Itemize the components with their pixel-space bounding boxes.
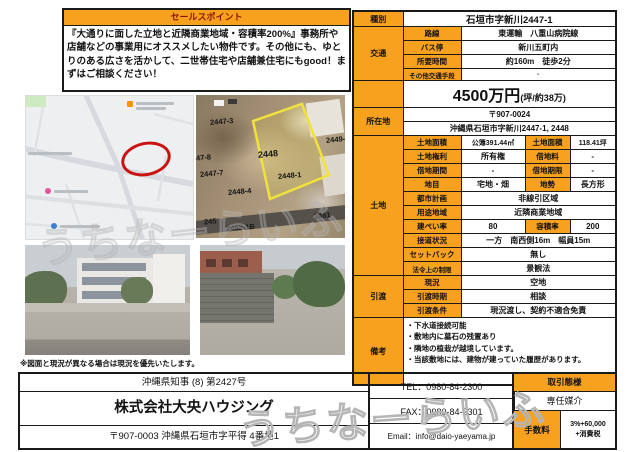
bus-stop-value: 新川五町内 (461, 41, 616, 55)
floor-ratio-label: 容積率 (525, 220, 570, 234)
road-access-label: 接道状況 (403, 234, 461, 248)
access-label: 交通 (353, 27, 403, 81)
deal-type-label: 取引態様 (514, 374, 615, 392)
map-marker-orange-label (136, 102, 174, 105)
lease-term-value: - (570, 164, 616, 178)
city-planning-value: 非線引区域 (461, 192, 616, 206)
note-line: ・隣地の植栽が越境しています。 (407, 343, 613, 354)
address: 沖縄県石垣市字新川2447-1, 2448 (403, 122, 616, 136)
handover-terms-value: 現況渡し、契約不適合免責 (461, 304, 616, 318)
company-address: 〒907-0003 沖縄県石垣市字平得 4番地1 (20, 426, 368, 448)
price-label-cell (353, 81, 403, 108)
disclaimer-note: ※図面と現況が異なる場合は現況を優先いたします。 (20, 358, 199, 369)
route-value: 東運輸 八重山病院線 (461, 27, 616, 41)
handover-label: 引渡 (353, 276, 403, 318)
price-per-tsubo: (坪/約38万) (520, 93, 566, 103)
fee-value: 3%+60,000 +消費税 (561, 411, 615, 448)
aerial-parcel-photo: 2447-3 47-8 2447-7 2448 2448-1 2448-4 24… (196, 95, 345, 238)
postal-code: 〒907-0024 (403, 108, 616, 122)
price-value: 4500万円 (453, 88, 521, 105)
map-marker-orange-label2 (136, 107, 166, 110)
time-value: 約160m 徒歩2分 (461, 55, 616, 69)
other-access-value: - (461, 69, 616, 81)
property-photo-lot (200, 245, 345, 355)
road-access-value: 一方 南西側16m 幅員15m (461, 234, 616, 248)
property-photo-street (25, 245, 190, 355)
photo-window-row (82, 263, 146, 271)
parcel-number: 2451 (314, 210, 331, 220)
sales-points-text: 『大通りに面した立地と近隣商業地域・容積率200%』事務所や店舗などの事業用にオ… (64, 26, 349, 83)
land-area-tsubo-value: 118.41坪 (570, 136, 616, 150)
email-address: Email：info@daio-yaeyama.jp (370, 424, 513, 448)
map-marker-orange-icon (127, 101, 133, 107)
other-access-label: その他交通手段 (403, 69, 461, 81)
sales-points-section: セールスポイント 『大通りに面した立地と近隣商業地域・容積率200%』事務所や店… (62, 8, 351, 92)
land-area-value: 公簿391.44㎡ (461, 136, 525, 150)
handover-time-value: 相談 (461, 290, 616, 304)
note-line: ・下水道接続可能 (407, 320, 613, 331)
photo-wall (25, 303, 190, 312)
topography-value: 長方形 (570, 178, 616, 192)
handover-time-label: 引渡時期 (403, 290, 461, 304)
setback-value: 無し (461, 248, 616, 262)
note-line: ・当該敷地には、建物が建っていた履歴があります。 (407, 354, 613, 365)
parcel-number: 2448 (258, 148, 279, 160)
zoning-label: 用途地域 (403, 206, 461, 220)
city-planning-label: 都市計画 (403, 192, 461, 206)
company-name: 株式会社大央ハウジング (20, 392, 368, 426)
lease-period-value: - (461, 164, 525, 178)
location-label: 所在地 (353, 108, 403, 136)
sales-points-header: セールスポイント (64, 10, 349, 26)
deal-type-value: 専任媒介 (514, 392, 615, 411)
current-state-value: 空地 (461, 276, 616, 290)
fax-number: FAX：0980-84-2301 (370, 399, 513, 424)
parcel-number: 245 (204, 216, 217, 226)
property-spec-table: 種別 石垣市字新川2447-1 交通 路線 東運輸 八重山病院線 バス停 新川五… (352, 10, 617, 386)
setback-label: セットバック (403, 248, 461, 262)
fee-line: +消費税 (575, 430, 600, 439)
lease-fee-value: - (570, 150, 616, 164)
land-area-label: 土地面積 (403, 136, 461, 150)
land-label: 土地 (353, 136, 403, 276)
land-category-value: 宅地・畑 (461, 178, 525, 192)
photo-window (238, 259, 248, 267)
zoning-value: 近隣商業地域 (461, 206, 616, 220)
photo-window (222, 259, 232, 267)
photo-tree (293, 261, 345, 307)
type-label: 種別 (353, 11, 403, 27)
photo-block-wall (200, 273, 274, 323)
license-number: 沖縄県知事 (8) 第2427号 (20, 374, 368, 392)
photo-window (206, 259, 216, 267)
land-category-label: 地目 (403, 178, 461, 192)
land-area-tsubo-label: 土地面積 (525, 136, 570, 150)
map-text-label (28, 152, 72, 155)
map-marker-blue-icon (51, 223, 57, 229)
route-label: 路線 (403, 27, 461, 41)
photo-building (153, 254, 185, 306)
topography-label: 地勢 (525, 178, 570, 192)
location-map (25, 95, 194, 240)
floor-ratio-value: 200 (570, 220, 616, 234)
map-roads (26, 96, 193, 239)
legal-restriction-label: 法令上の制限 (403, 262, 461, 276)
parcel-number: 2449- (326, 134, 345, 145)
map-marker-pink-icon (45, 188, 51, 194)
price-cell: 4500万円(坪/約38万) (403, 81, 616, 108)
land-rights-value: 所有権 (461, 150, 525, 164)
property-flyer-page: セールスポイント 『大通りに面した立地と近隣商業地域・容積率200%』事務所や店… (0, 0, 640, 452)
handover-terms-label: 引渡条件 (403, 304, 461, 318)
type-value: 石垣市字新川2447-1 (403, 11, 616, 27)
contact-box: TEL：0980-84-2300 FAX：0980-84-2301 Email：… (368, 372, 515, 450)
coverage-ratio-label: 建ぺい率 (403, 220, 461, 234)
land-rights-label: 土地権利 (403, 150, 461, 164)
map-park-area (26, 96, 46, 107)
map-marker-blue-label (60, 225, 100, 228)
note-line: ・敷地内に墓石の残置あり (407, 331, 613, 342)
photo-tree (121, 277, 153, 305)
fee-line: 3%+60,000 (570, 420, 606, 429)
company-info-box: 沖縄県知事 (8) 第2427号 株式会社大央ハウジング 〒907-0003 沖… (18, 372, 370, 450)
bus-stop-label: バス停 (403, 41, 461, 55)
lease-period-label: 借地期間 (403, 164, 461, 178)
legal-restriction-value: 景観法 (461, 262, 616, 276)
fee-label: 手数料 (514, 411, 561, 448)
deal-info-box: 取引態様 専任媒介 手数料 3%+60,000 +消費税 (512, 372, 617, 450)
current-state-label: 現況 (403, 276, 461, 290)
lease-term-label: 借地期限 (525, 164, 570, 178)
coverage-ratio-value: 80 (461, 220, 525, 234)
map-marker-pink-label (54, 190, 88, 193)
lease-fee-label: 借地料 (525, 150, 570, 164)
parcel-number: 47-8 (196, 152, 211, 162)
tel-number: TEL：0980-84-2300 (370, 374, 513, 399)
time-label: 所要時間 (403, 55, 461, 69)
